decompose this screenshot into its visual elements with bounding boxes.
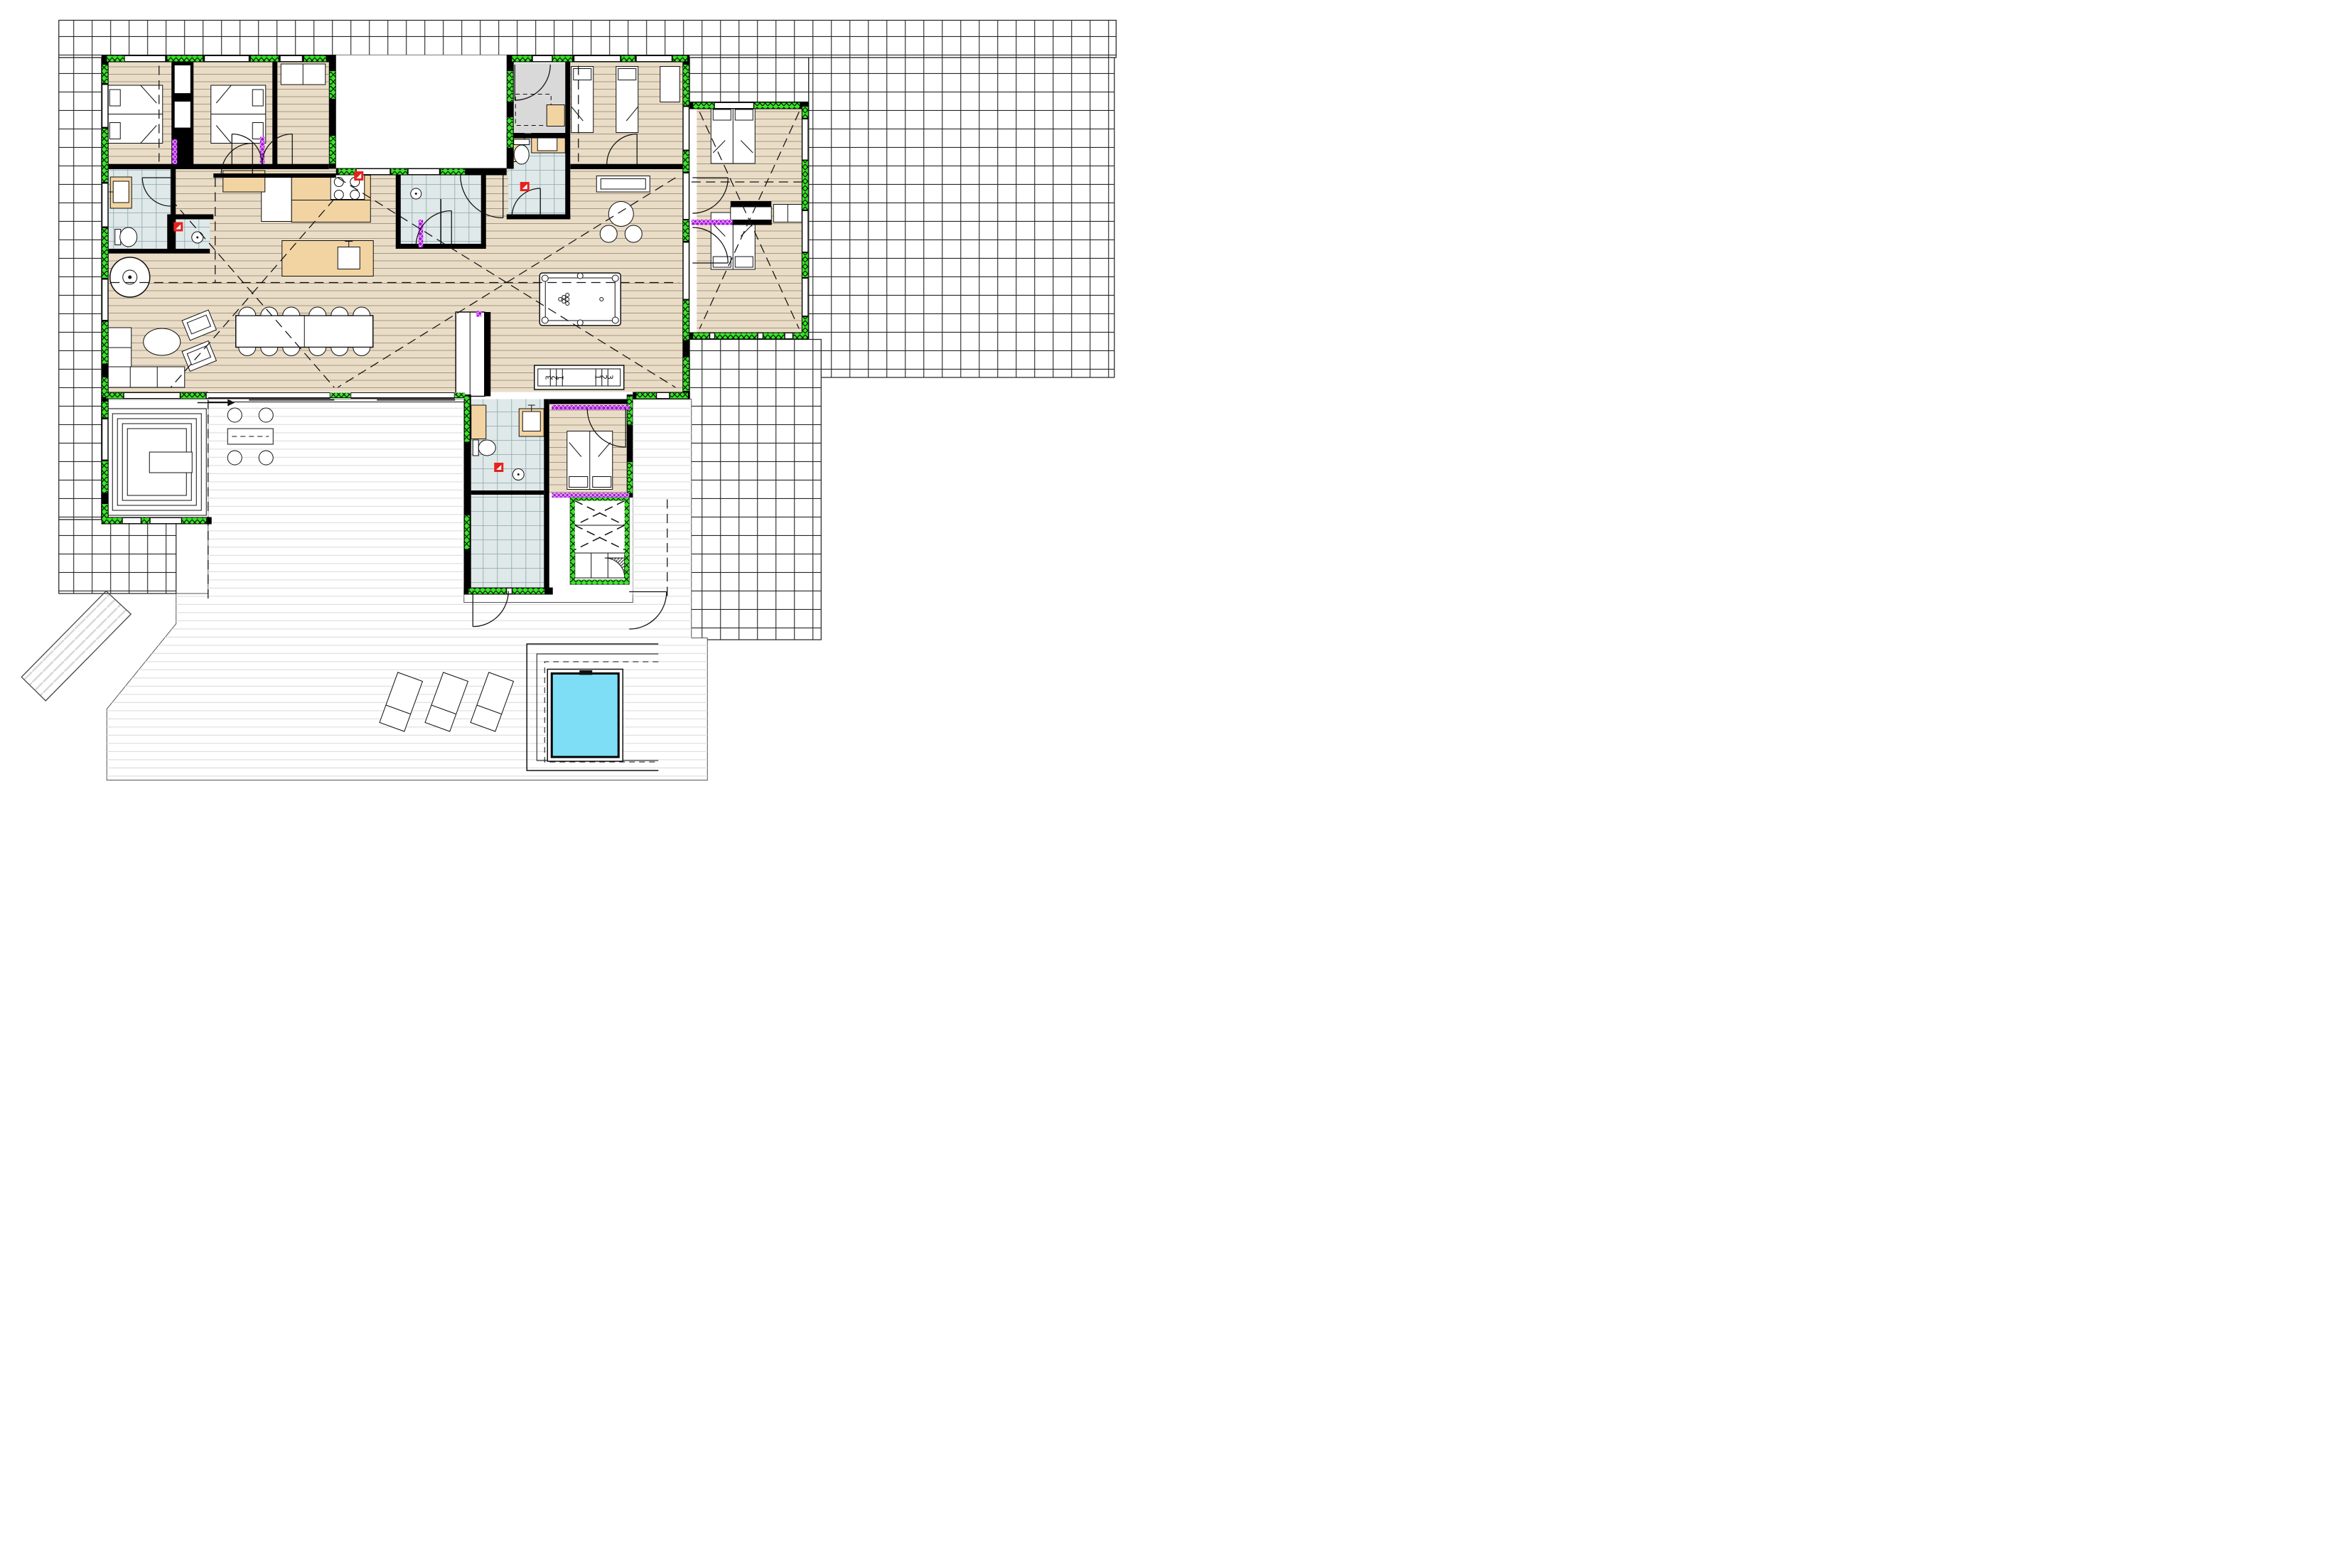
round-table (608, 202, 633, 227)
pool-water (552, 674, 618, 758)
chair (625, 225, 642, 242)
island-sink (338, 247, 360, 269)
smoke-detector-icon (520, 182, 530, 191)
tv-wall-unit (456, 312, 490, 397)
shower-head-west (192, 232, 203, 243)
sink-cabinet-west (109, 177, 131, 208)
sink (522, 412, 540, 431)
toilet-north (514, 139, 530, 164)
wc-north (508, 134, 565, 215)
shuffleboard-number: 3 (605, 375, 614, 380)
storage-bench (575, 553, 625, 578)
chair (600, 225, 617, 242)
smoke-detector-icon (494, 463, 503, 472)
sideboard (596, 176, 650, 193)
deck-ramp (21, 591, 131, 702)
fire-table (149, 452, 192, 473)
smoke-detector-icon (173, 222, 183, 232)
bed-double-west-1 (107, 85, 163, 144)
bed-double-south (567, 431, 613, 490)
bed-double-wing-north (711, 107, 755, 163)
pool-ladder (579, 670, 592, 675)
storage-room (570, 496, 629, 584)
sunken-lounge (107, 409, 206, 515)
shower-head-south (512, 469, 524, 480)
fridge-unit (262, 176, 292, 222)
toilet-south (473, 440, 495, 456)
bed-twin-north-1 (571, 67, 594, 133)
smoke-detector-icon (354, 171, 363, 181)
coffee-table (144, 328, 181, 355)
floor-plan-page: 3 2 1 1 2 3 (0, 0, 1176, 784)
utility-room (508, 63, 565, 134)
pool-table (539, 273, 621, 326)
shuffleboard-table: 3 2 1 1 2 3 (535, 365, 624, 390)
toilet-west (115, 227, 137, 247)
wardrobe-north (660, 67, 680, 102)
floor-plan-svg: 3 2 1 1 2 3 (0, 0, 1176, 784)
bed-twin-north-2 (616, 67, 638, 133)
shuffleboard-number: 1 (556, 375, 565, 380)
sun-loungers (380, 672, 513, 731)
